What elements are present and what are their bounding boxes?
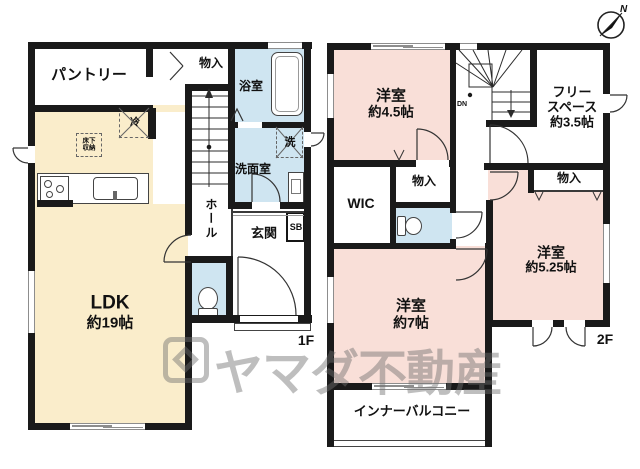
wall: [450, 167, 456, 213]
wall: [148, 108, 156, 139]
room-label-entrance: 玄関: [251, 227, 277, 242]
wall: [304, 42, 311, 323]
ldk-line2: 約19帖: [87, 314, 134, 331]
wall: [334, 243, 456, 249]
room-label-hall: ホール: [203, 198, 217, 240]
wall: [450, 50, 456, 167]
wall: [530, 50, 537, 127]
ldk-line1: LDK: [87, 292, 134, 314]
free-space-line2: スペース: [547, 101, 597, 116]
door-gap: [603, 94, 610, 113]
bedroom525-line2: 約5.25帖: [525, 261, 576, 276]
window: [327, 74, 334, 118]
window: [268, 42, 302, 49]
window: [371, 43, 445, 50]
room-label-bath: 浴室: [239, 80, 263, 94]
underfloor-storage-label: 床下 収納: [83, 138, 96, 153]
washer-label: 洗: [285, 137, 296, 150]
floor-label-2f: 2F: [597, 331, 613, 347]
wall: [28, 42, 35, 430]
window: [327, 277, 334, 323]
bathtub: [271, 52, 303, 116]
room-label-bedroom-7: 洋室 約7帖: [393, 297, 429, 330]
room-label-free-space: フリー スペース 約3.5帖: [547, 86, 597, 131]
door-gap: [240, 316, 298, 322]
entrance-porch: [234, 323, 311, 331]
room-label-pantry: パントリー: [51, 66, 127, 83]
room-label-closet-1f: 物入: [199, 57, 223, 71]
staircase-1f: [192, 88, 228, 187]
balcony-railing: [329, 440, 489, 447]
burner-icon: [56, 185, 64, 193]
faucet: [113, 191, 117, 200]
door-gap: [564, 320, 585, 327]
free-space-line3: 約3.5帖: [547, 115, 597, 130]
room-label-ldk: LDK 約19帖: [87, 292, 134, 331]
hall-step-line: [231, 209, 233, 256]
wall: [486, 200, 493, 320]
bedroom7-line1: 洋室: [393, 297, 429, 314]
burner-icon: [44, 180, 52, 188]
bedroom45-line1: 洋室: [368, 88, 414, 105]
bedroom525-line1: 洋室: [525, 244, 576, 260]
shoe-box-label: SB: [290, 222, 303, 232]
wall: [603, 43, 610, 327]
floor-plan: DN: [0, 0, 640, 469]
wall: [146, 42, 153, 77]
bedroom7-line2: 約7帖: [393, 315, 429, 331]
room-label-wic: WIC: [347, 195, 374, 211]
staircase-2f: DN: [456, 50, 530, 120]
wall: [528, 163, 534, 193]
stove: [40, 176, 69, 201]
free-space-line1: フリー: [547, 86, 597, 101]
closet-front-line: [534, 190, 604, 192]
door-gap: [532, 320, 553, 327]
wall: [484, 163, 610, 170]
vanity-basin: [291, 179, 301, 194]
window: [70, 423, 145, 430]
wall: [185, 84, 192, 235]
window: [372, 383, 446, 390]
door-gap: [238, 122, 262, 128]
wall: [185, 262, 192, 430]
bathtub-inner: [275, 56, 299, 112]
floor-label-1f: 1F: [298, 332, 314, 348]
window: [603, 224, 610, 283]
compass-icon: N: [598, 4, 628, 38]
room-label-washroom: 洗面室: [235, 163, 271, 177]
room-label-closet-2f-right: 物入: [557, 172, 581, 186]
room-label-bedroom-4-5: 洋室 約4.5帖: [368, 88, 414, 121]
door-gap: [304, 132, 311, 147]
wall: [226, 256, 233, 323]
room-label-closet-2f-left: 物入: [412, 175, 436, 189]
down-label: DN: [457, 101, 467, 108]
bedroom45-line2: 約4.5帖: [368, 105, 414, 121]
burner-icon: [46, 191, 53, 198]
toilet-bowl-2f: [405, 217, 422, 235]
wall: [396, 202, 450, 208]
room-label-balcony: インナーバルコニー: [354, 405, 471, 420]
wall: [37, 200, 73, 207]
corridor-1f: [153, 112, 186, 204]
room-label-bedroom-5-25: 洋室 約5.25帖: [525, 244, 576, 275]
window: [28, 271, 35, 333]
wall: [486, 120, 537, 127]
door-gap: [252, 202, 280, 209]
genkan-step-line: [233, 215, 304, 216]
toilet-bowl-1f: [198, 287, 218, 310]
genkan-step-line: [233, 211, 304, 213]
underfloor-line2: 収納: [83, 145, 96, 152]
compass-north-label: N: [620, 4, 628, 15]
door-gap: [416, 160, 449, 167]
window: [460, 43, 477, 50]
fridge-label: 冷: [130, 117, 140, 129]
door-gap: [28, 146, 35, 163]
wall: [28, 105, 153, 112]
